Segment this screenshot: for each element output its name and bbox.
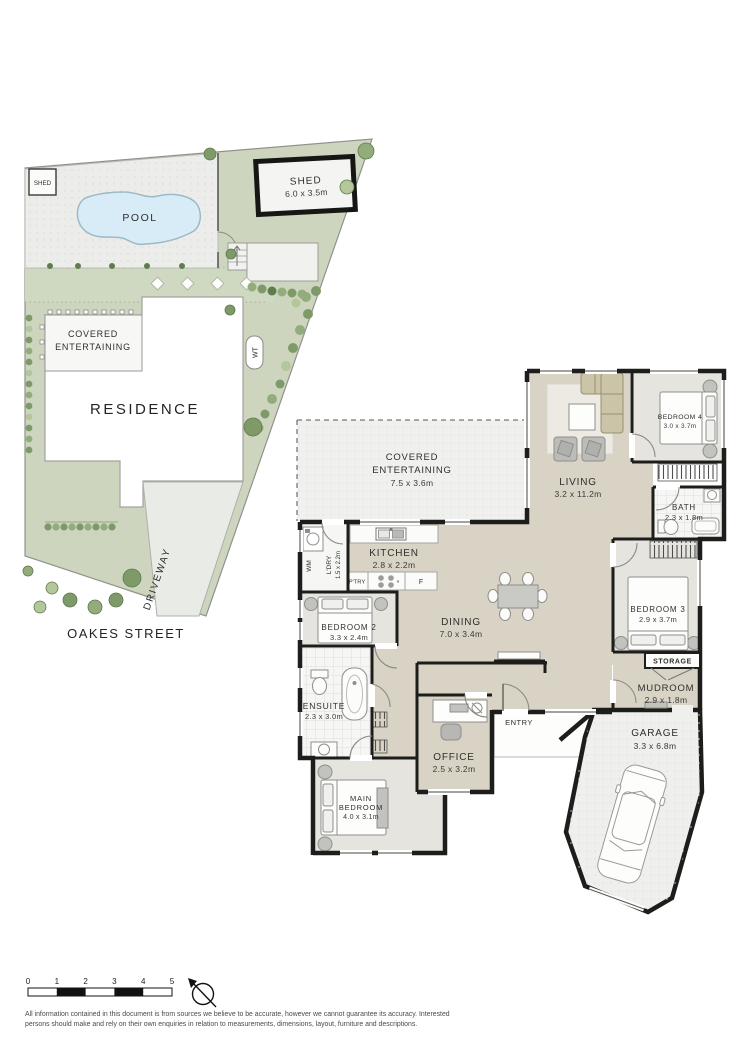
storage-label: STORAGE	[653, 659, 692, 666]
disclaimer-line2: persons should make and rely on their ow…	[25, 1021, 417, 1028]
water-tank-label: WT	[253, 346, 260, 358]
small-shed-label: SHED	[34, 180, 52, 187]
laundry-dims: 1.5 x 2.2m	[336, 551, 342, 579]
garage-dims: 3.3 x 6.8m	[634, 741, 677, 751]
ensuite-label: ENSUITE	[303, 701, 345, 711]
scale-tick-5: 5	[170, 977, 175, 986]
pantry-label: P'TRY	[349, 580, 366, 586]
living-furniture	[547, 373, 623, 461]
bedroom4-dims: 3.0 x 3.7m	[664, 423, 697, 430]
scale-tick-4: 4	[141, 977, 146, 986]
main-bedroom-dims: 4.0 x 3.1m	[343, 814, 379, 821]
bath-label: BATH	[672, 503, 696, 512]
scale-tick-0: 0	[26, 977, 31, 986]
fp-covered-line1: COVERED	[386, 452, 439, 463]
hedge-row	[44, 523, 115, 530]
kitchen-label: KITCHEN	[369, 548, 419, 559]
shed-label: SHED	[290, 175, 322, 188]
office-dims: 2.5 x 3.2m	[433, 764, 476, 774]
entry-label: ENTRY	[505, 718, 533, 727]
laundry-fixtures	[303, 527, 323, 551]
floorplan-page: POOL SHED SHED 6.0 x 3.5m	[0, 0, 750, 1062]
garage-label: GARAGE	[631, 728, 679, 739]
living-dims: 3.2 x 11.2m	[554, 489, 601, 499]
wm-label: WM	[306, 560, 313, 572]
laundry-label: L'DRY	[326, 555, 333, 574]
disclaimer-line1: All information contained in this docume…	[25, 1011, 450, 1018]
bedroom2-dims: 3.3 x 2.4m	[330, 633, 368, 642]
console-icon	[498, 652, 540, 659]
residence-label: RESIDENCE	[90, 401, 200, 418]
street-label: OAKES STREET	[67, 626, 185, 641]
kitchen-dims: 2.8 x 2.2m	[373, 560, 416, 570]
mudroom-label: MUDROOM	[638, 683, 695, 694]
scale-tick-2: 2	[83, 977, 88, 986]
dining-label: DINING	[441, 617, 481, 628]
dining-dims: 7.0 x 3.4m	[440, 629, 483, 639]
site-covered-line1: COVERED	[68, 329, 118, 339]
main-bedroom-line2: BEDROOM	[339, 803, 383, 812]
main-bedroom-line1: MAIN	[350, 794, 372, 803]
floorplan-drawing: POOL SHED SHED 6.0 x 3.5m	[0, 0, 750, 1062]
scale-tick-1: 1	[55, 977, 60, 986]
ensuite-dims: 2.3 x 3.0m	[305, 712, 343, 721]
pool-label: POOL	[122, 212, 157, 224]
fridge-label: F	[419, 579, 423, 586]
fp-covered-line2: ENTERTAINING	[372, 465, 451, 476]
fp-covered-dims: 7.5 x 3.6m	[391, 478, 434, 488]
coffee-table-icon	[569, 404, 595, 430]
site-covered-line2: ENTERTAINING	[55, 342, 131, 352]
mudroom-dims: 2.9 x 1.8m	[645, 695, 688, 705]
living-label: LIVING	[559, 477, 597, 488]
bedroom3-label: BEDROOM 3	[630, 605, 685, 614]
patio	[247, 243, 318, 281]
floor-plan: P'TRY F WM L'DRY 1.5 x 2.2m	[297, 368, 727, 912]
scale-tick-3: 3	[112, 977, 117, 986]
bedroom3-dims: 2.9 x 3.7m	[639, 615, 677, 624]
scale-bar: 0 1 2 3 4 5	[26, 977, 175, 996]
office-label: OFFICE	[433, 752, 474, 763]
disclaimer: All information contained in this docume…	[25, 1011, 450, 1028]
bath-dims: 2.3 x 1.8m	[665, 513, 703, 522]
compass-icon	[188, 978, 216, 1007]
bedroom4-label: BEDROOM 4	[658, 414, 702, 421]
bedroom2-label: BEDROOM 2	[321, 623, 376, 632]
